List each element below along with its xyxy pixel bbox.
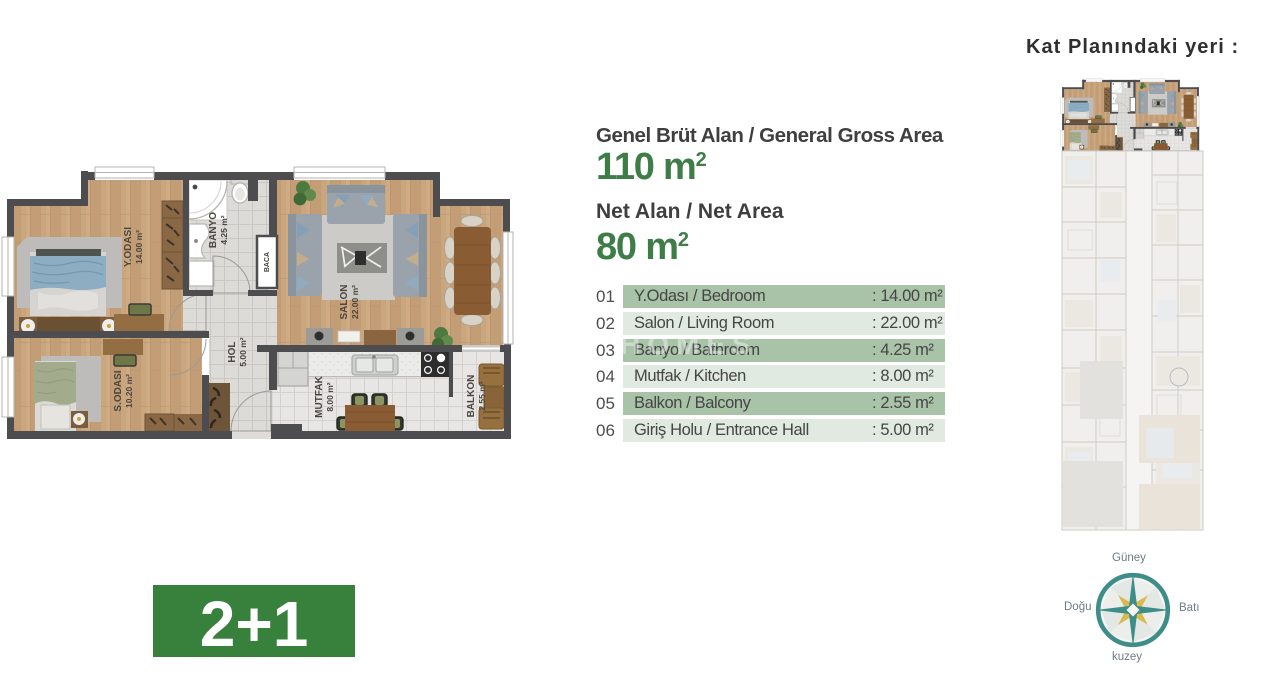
svg-text:4.25 m²: 4.25 m² <box>219 215 229 244</box>
svg-text:14.00 m²: 14.00 m² <box>134 230 144 264</box>
svg-text:BANYO: BANYO <box>208 212 219 248</box>
svg-text:BALKON: BALKON <box>466 375 477 418</box>
svg-text:5.00 m²: 5.00 m² <box>238 337 248 366</box>
svg-text:MUTFAK: MUTFAK <box>314 375 325 417</box>
svg-text:10.20 m²: 10.20 m² <box>124 374 134 408</box>
svg-text:SALON: SALON <box>339 285 350 320</box>
svg-text:8.00 m²: 8.00 m² <box>325 382 335 411</box>
svg-text:HOL: HOL <box>227 341 238 362</box>
svg-text:2.55 m²: 2.55 m² <box>477 381 487 410</box>
svg-text:S.ODASI: S.ODASI <box>113 370 124 411</box>
svg-text:BACA: BACA <box>264 252 271 272</box>
svg-text:22.00 m²: 22.00 m² <box>350 285 360 319</box>
svg-text:Y.ODASI: Y.ODASI <box>123 227 134 267</box>
